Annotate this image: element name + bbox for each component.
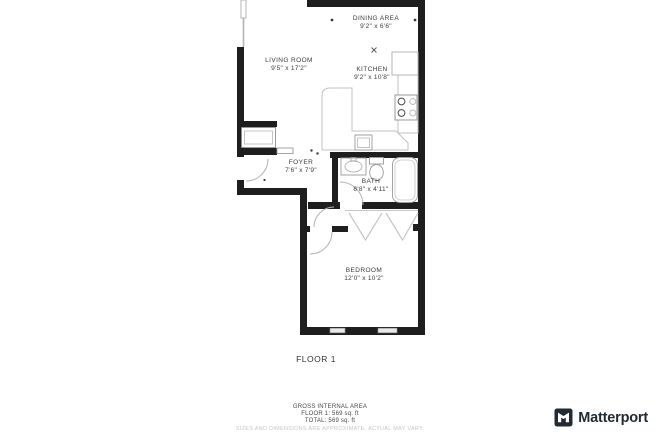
- disclaimer-text: SIZES AND DIMENSIONS ARE APPROXIMATE, AC…: [0, 426, 660, 433]
- toilet-tank: [370, 158, 384, 165]
- hinge-dot: [310, 149, 312, 151]
- room-name: BATH: [353, 178, 388, 186]
- fixture-dot: [331, 19, 334, 22]
- fixture-dot: [414, 19, 417, 22]
- room-label-dining-area: DINING AREA 9'2" x 6'6": [353, 15, 399, 31]
- room-dims: 7'6" x 7'9": [285, 167, 317, 175]
- matterport-logo-icon: [554, 408, 573, 427]
- storage-cabinet: [242, 128, 276, 148]
- closet-symbols: [345, 211, 418, 241]
- hall-door-arc: [314, 207, 334, 227]
- room-name: FOYER: [285, 159, 317, 167]
- floor-title: FLOOR 1: [296, 354, 336, 364]
- room-name: DINING AREA: [353, 15, 399, 23]
- hinge-dot: [263, 179, 265, 181]
- entry-door-arc: [246, 159, 268, 181]
- window-lines: [241, 0, 246, 47]
- room-label-living-room: LIVING ROOM 9'5" x 17'2": [265, 57, 313, 73]
- room-dims: 8'8" x 4'11": [353, 186, 388, 194]
- room-label-bath: BATH 8'8" x 4'11": [353, 178, 388, 194]
- matterport-logo-text: Matterport: [578, 410, 648, 426]
- refrigerator: [392, 52, 418, 75]
- room-name: KITCHEN: [354, 66, 390, 74]
- room-name: LIVING ROOM: [265, 57, 313, 65]
- room-label-bedroom: BEDROOM 12'0" x 10'2": [344, 267, 384, 283]
- room-dims: 9'2" x 6'6": [353, 23, 399, 31]
- room-name: BEDROOM: [344, 267, 384, 275]
- room-label-foyer: FOYER 7'6" x 7'9": [285, 159, 317, 175]
- shelf: [277, 148, 293, 154]
- bathtub: [393, 158, 418, 203]
- floorplan-page: DINING AREA 9'2" x 6'6" LIVING ROOM 9'5"…: [0, 0, 660, 440]
- matterport-logo: Matterport: [554, 408, 648, 427]
- floor-plan-drawing: [0, 0, 660, 440]
- room-dims: 9'2" x 10'8": [354, 74, 390, 82]
- closet-rod-icon: [349, 213, 382, 240]
- room-dims: 12'0" x 10'2": [344, 275, 384, 283]
- room-dims: 9'5" x 17'2": [265, 65, 313, 73]
- room-label-kitchen: KITCHEN 9'2" x 10'8": [354, 66, 390, 82]
- hinge-dot: [316, 152, 318, 154]
- bedroom-door-arc: [310, 232, 332, 254]
